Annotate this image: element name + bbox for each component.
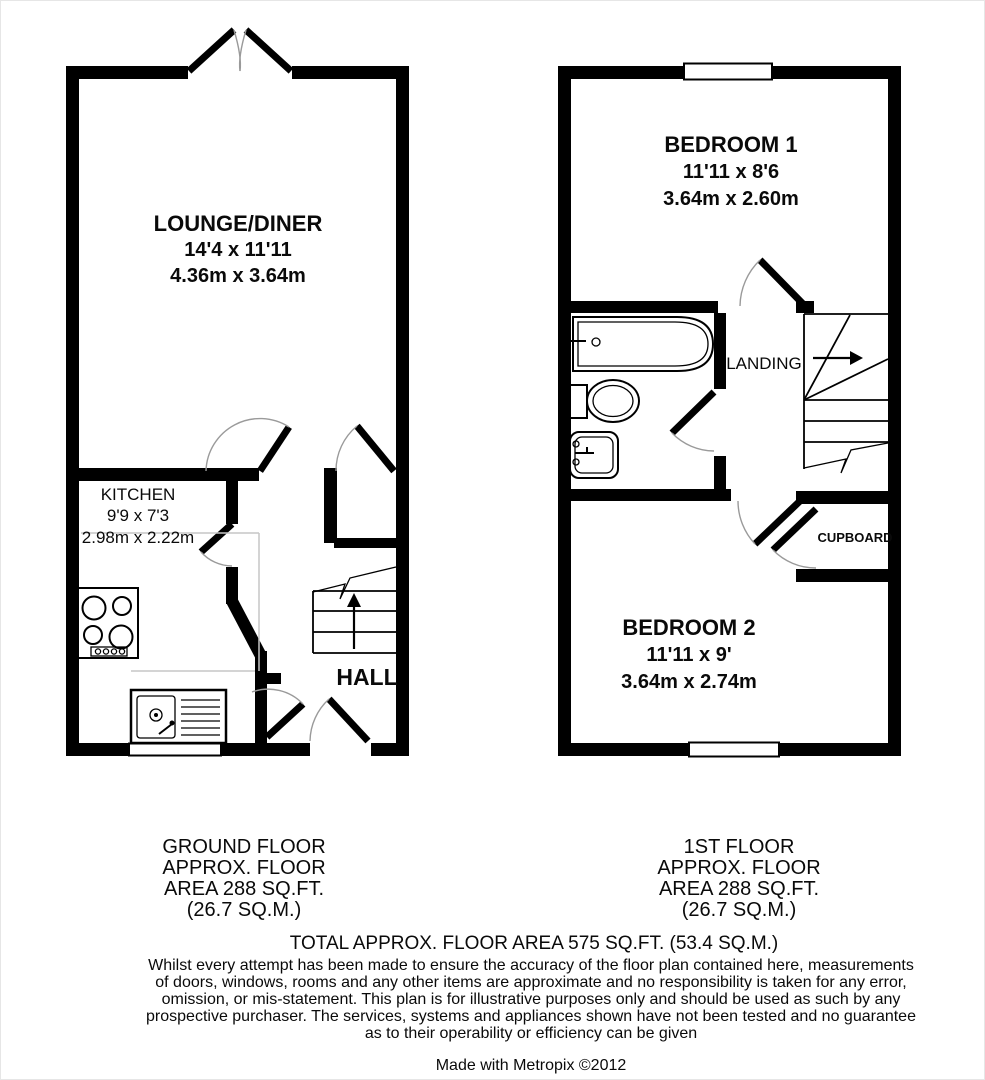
- first-stairs: [804, 314, 888, 473]
- toilet-fixture: [569, 380, 639, 422]
- first-floor-plan: BEDROOM 1 11'11 x 8'6 3.64m x 2.60m LAND…: [558, 64, 901, 757]
- drainer-lines: [181, 700, 220, 735]
- hob-fixture: [76, 588, 138, 658]
- bedroom1-door: [740, 260, 805, 306]
- lounge-dim-metric: 4.36m x 3.64m: [170, 265, 306, 287]
- bedroom2-dim-imperial: 11'11 x 9': [646, 644, 731, 666]
- bedroom1-dim-imperial: 11'11 x 8'6: [683, 161, 779, 183]
- hall-label: HALL: [336, 664, 397, 690]
- kitchen-dim-metric: 2.98m x 2.22m: [82, 528, 194, 547]
- cupboard-label: CUPBOARD: [817, 530, 892, 545]
- french-doors: [189, 30, 291, 71]
- stairs-right-arrow-icon: [850, 351, 863, 365]
- disclaimer-line2: of doors, windows, rooms and any other i…: [155, 974, 906, 991]
- total-area-line: TOTAL APPROX. FLOOR AREA 575 SQ.FT. (53.…: [290, 933, 779, 954]
- ground-caption-line2: APPROX. FLOOR: [162, 857, 325, 879]
- first-caption-line1: 1ST FLOOR: [684, 836, 795, 858]
- front-door: [310, 699, 368, 741]
- bedroom1-dim-metric: 3.64m x 2.60m: [663, 188, 799, 210]
- footer: GROUND FLOOR APPROX. FLOOR AREA 288 SQ.F…: [146, 836, 916, 1074]
- floorplan-page: LOUNGE/DINER 14'4 x 11'11 4.36m x 3.64m …: [0, 0, 985, 1080]
- lounge-dim-imperial: 14'4 x 11'11: [184, 239, 291, 261]
- ground-caption-line1: GROUND FLOOR: [162, 836, 325, 858]
- first-floor-caption: 1ST FLOOR APPROX. FLOOR AREA 288 SQ.FT. …: [657, 836, 820, 921]
- ground-caption-line4: (26.7 SQ.M.): [187, 899, 301, 921]
- floorplan-canvas: LOUNGE/DINER 14'4 x 11'11 4.36m x 3.64m …: [1, 1, 985, 1080]
- lounge-label: LOUNGE/DINER: [154, 211, 323, 236]
- bathroom-door: [672, 392, 714, 451]
- bath-fixture: [567, 317, 713, 371]
- lounge-hall-door: [336, 426, 394, 471]
- ground-floor-plan: LOUNGE/DINER 14'4 x 11'11 4.36m x 3.64m …: [66, 30, 409, 756]
- lounge-kitchen-door: [206, 419, 289, 471]
- kitchen-window: [129, 744, 221, 756]
- winder-line: [804, 359, 888, 400]
- credit-line: Made with Metropix ©2012: [436, 1057, 627, 1074]
- bedroom2-label: BEDROOM 2: [622, 615, 755, 640]
- stairs-up-arrow-icon: [347, 593, 361, 607]
- disclaimer-line3: omission, or mis-statement. This plan is…: [162, 991, 901, 1008]
- kitchen-sink-fixture: [131, 690, 226, 743]
- first-caption-line3: AREA 288 SQ.FT.: [659, 878, 819, 900]
- ground-stairs: [313, 567, 396, 653]
- bedroom1-label: BEDROOM 1: [664, 132, 797, 157]
- basin-fixture: [570, 432, 618, 478]
- landing-label: LANDING: [726, 354, 802, 373]
- disclaimer-line4: prospective purchaser. The services, sys…: [146, 1008, 916, 1025]
- disclaimer: Whilst every attempt has been made to en…: [146, 957, 916, 1042]
- first-caption-line2: APPROX. FLOOR: [657, 857, 820, 879]
- bedroom2-dim-metric: 3.64m x 2.74m: [621, 671, 757, 693]
- bedroom1-window: [684, 64, 772, 80]
- stair-break-line: [804, 443, 888, 473]
- bedroom2-window: [689, 743, 779, 757]
- kitchen-upper-door: [201, 524, 232, 566]
- first-caption-line4: (26.7 SQ.M.): [682, 899, 796, 921]
- kitchen-dim-imperial: 9'9 x 7'3: [107, 506, 169, 525]
- kitchen-label: KITCHEN: [101, 485, 176, 504]
- disclaimer-line5: as to their operability or efficiency ca…: [365, 1025, 697, 1042]
- ground-floor-caption: GROUND FLOOR APPROX. FLOOR AREA 288 SQ.F…: [162, 836, 325, 921]
- ground-caption-line3: AREA 288 SQ.FT.: [164, 878, 324, 900]
- disclaimer-line1: Whilst every attempt has been made to en…: [148, 957, 914, 974]
